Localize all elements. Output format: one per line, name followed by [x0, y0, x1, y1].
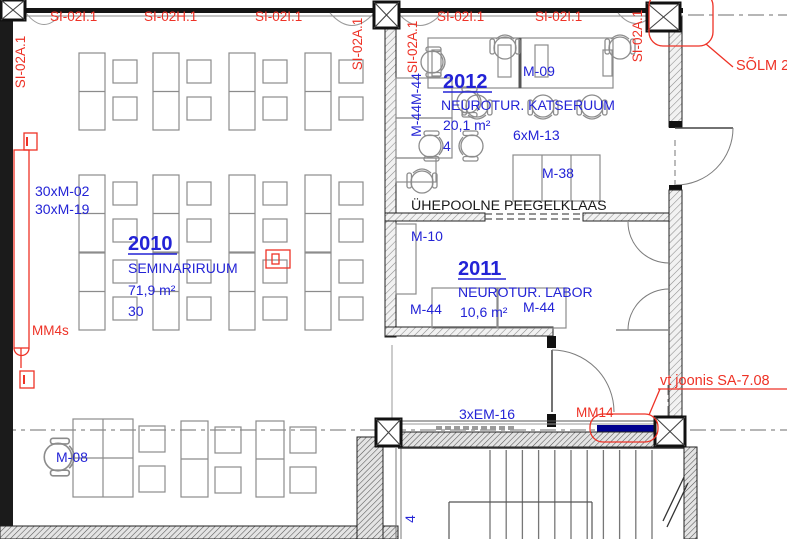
chair-square [187, 182, 211, 205]
column [374, 2, 399, 28]
chair-square [290, 467, 316, 493]
chair-square [263, 182, 287, 205]
chair-square [263, 297, 287, 320]
room-capacity-2012: 4 [443, 138, 451, 154]
chair-square [113, 97, 137, 120]
mm4s-duct [14, 150, 29, 348]
floor-plan: SI-02I.1 SI-02H.1 SI-02I.1 SI-02I.1 SI-0… [0, 0, 787, 539]
mm14-label: MM14 [576, 405, 614, 420]
chair-icon [459, 131, 483, 161]
room-2012-furniture [396, 35, 635, 201]
room-number-2011: 2011 [458, 258, 501, 280]
room-capacity-2010: 30 [128, 303, 144, 319]
furniture-label-m38: M-38 [542, 165, 574, 181]
window-label: SI-02I.1 [437, 9, 484, 24]
count-label: 30xM-19 [35, 201, 90, 217]
door-swing-2011-b [628, 289, 669, 330]
glass-note: ÜHEPOOLNE PEEGELKLAAS [411, 196, 607, 214]
mm4s-label: MM4s [32, 323, 69, 338]
right-wall-lower [669, 190, 682, 447]
floor-plan-canvas: SI-02I.1 SI-02H.1 SI-02I.1 SI-02I.1 SI-0… [0, 0, 787, 539]
window-label: SI-02I.1 [255, 9, 302, 24]
furniture-label-m09: M-09 [523, 63, 555, 79]
window-label-vertical: SI-02A.1 [405, 21, 420, 74]
room-number-2010: 2010 [128, 233, 173, 255]
chair-square [339, 97, 363, 120]
door-post-top [547, 336, 556, 348]
window-label-vertical: SI-02A.1 [13, 36, 28, 89]
stair-label-vertical: 4 [402, 515, 418, 523]
stair-left-wall [357, 437, 383, 539]
room-number-2012: 2012 [443, 71, 488, 93]
room-name-2011: NEUROTUR. LABOR [458, 284, 593, 300]
chair-square [187, 60, 211, 83]
door-swing-2011-a [628, 222, 669, 263]
chair-square [263, 219, 287, 242]
furniture-label-em16: 3xEM-16 [459, 406, 515, 422]
count-label: 30xM-02 [35, 183, 90, 199]
window-label-vertical: SI-02A.1 [630, 10, 645, 63]
equipment-tag [266, 250, 290, 268]
columns [1, 0, 685, 446]
chair-square [339, 260, 363, 283]
furniture-label-m10: M-10 [411, 228, 443, 244]
furniture-label-m44-left: M-44 [410, 301, 442, 317]
chair-square [215, 467, 241, 493]
chair-square [113, 182, 137, 205]
furniture-label-m08: M-08 [56, 449, 88, 465]
corridor-desks [73, 419, 316, 497]
room-area-2012: 20,1 m² [443, 117, 491, 133]
room-name-2012: NEUROTUR. KATSERUUM [441, 97, 615, 113]
pc-tower [498, 45, 511, 77]
corridor-stair-wall [398, 432, 655, 447]
window-label: SI-02I.1 [535, 9, 582, 24]
furniture-label-m44-right: M-44 [523, 299, 555, 315]
solm-note: SÕLM 2 [736, 57, 787, 74]
mm14-element [597, 425, 654, 432]
chair-square [113, 60, 137, 83]
chair-square [215, 427, 241, 453]
stair-treads [490, 450, 652, 539]
left-wall [0, 8, 13, 539]
mirror-glass-dashed [485, 214, 583, 219]
wall-2012-2011-left [385, 213, 485, 221]
wall-2012-left [385, 16, 396, 337]
window-label: SI-02H.1 [144, 9, 197, 24]
vt-joonis-note: vt joonis SA-7.08 [660, 373, 770, 389]
chair-square [187, 219, 211, 242]
column [1, 0, 25, 20]
column [376, 419, 401, 446]
seminar-room-desks [79, 53, 363, 330]
chair-square [263, 60, 287, 83]
furniture-label-m13: 6xM-13 [513, 127, 560, 143]
chair-square [187, 97, 211, 120]
room-area-2010: 71,9 m² [128, 282, 176, 298]
chair-icon [407, 169, 437, 193]
wall-2012-2011-right [583, 213, 670, 221]
chair-square [187, 297, 211, 320]
bottom-wall [0, 526, 398, 539]
right-wall-upper [669, 17, 682, 127]
chair-square [339, 219, 363, 242]
door-swing-right [676, 128, 733, 185]
door-swing-corridor [552, 350, 614, 412]
chair-square [339, 182, 363, 205]
column [647, 3, 680, 31]
chair-square [263, 97, 287, 120]
chair-square [139, 466, 165, 492]
room-name-2010: SEMINARIRUUM [128, 260, 238, 276]
room-area-2011: 10,6 m² [460, 304, 508, 320]
column [655, 417, 685, 446]
stair-right-wall [684, 447, 697, 539]
window-label: SI-02I.1 [50, 9, 97, 24]
furniture-label-m44-vertical: M-44M-44 [408, 73, 424, 137]
chair-square [290, 427, 316, 453]
chair-square [339, 297, 363, 320]
window-label-vertical: SI-02A.1 [350, 18, 365, 71]
